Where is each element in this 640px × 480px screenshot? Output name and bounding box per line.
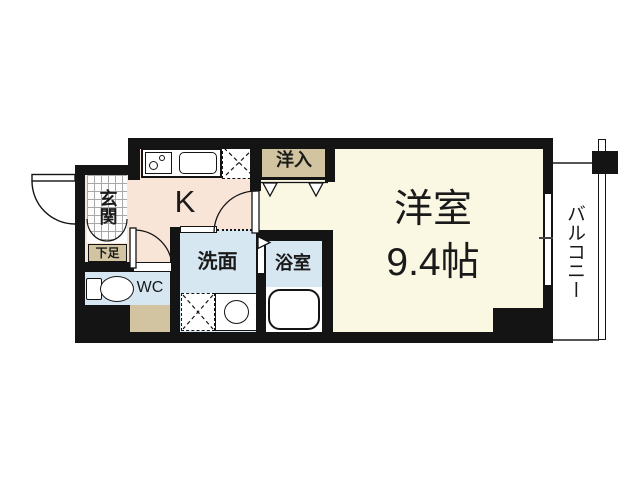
room-door-arc [214, 191, 256, 233]
entrance-door-arc [32, 181, 75, 224]
room-door-leaf [252, 191, 259, 233]
closet-bifold-left-icon [263, 183, 277, 196]
washroom-label: 洗面 [177, 249, 258, 275]
living-room-size-label: 9.4帖 [333, 241, 533, 285]
entrance-step-fill [87, 219, 127, 243]
floor-plan: 玄関 下足 洋入 バルコニー [0, 0, 640, 480]
kitchen-label: K [155, 182, 215, 222]
bathroom-label: 浴室 [262, 252, 324, 274]
closet-bifold-right-icon [309, 183, 323, 196]
washing-machine-x-icon [183, 295, 213, 329]
entrance-door-leaf [32, 175, 75, 182]
refrigerator-x-icon [224, 148, 254, 177]
wc-label: WC [132, 278, 168, 298]
wc-door-leaf [130, 228, 136, 268]
door-symbols-layer [0, 0, 640, 480]
living-room-label: 洋室 [333, 188, 533, 232]
bath-door-icon [258, 237, 270, 249]
wc-door-arc [136, 230, 172, 266]
